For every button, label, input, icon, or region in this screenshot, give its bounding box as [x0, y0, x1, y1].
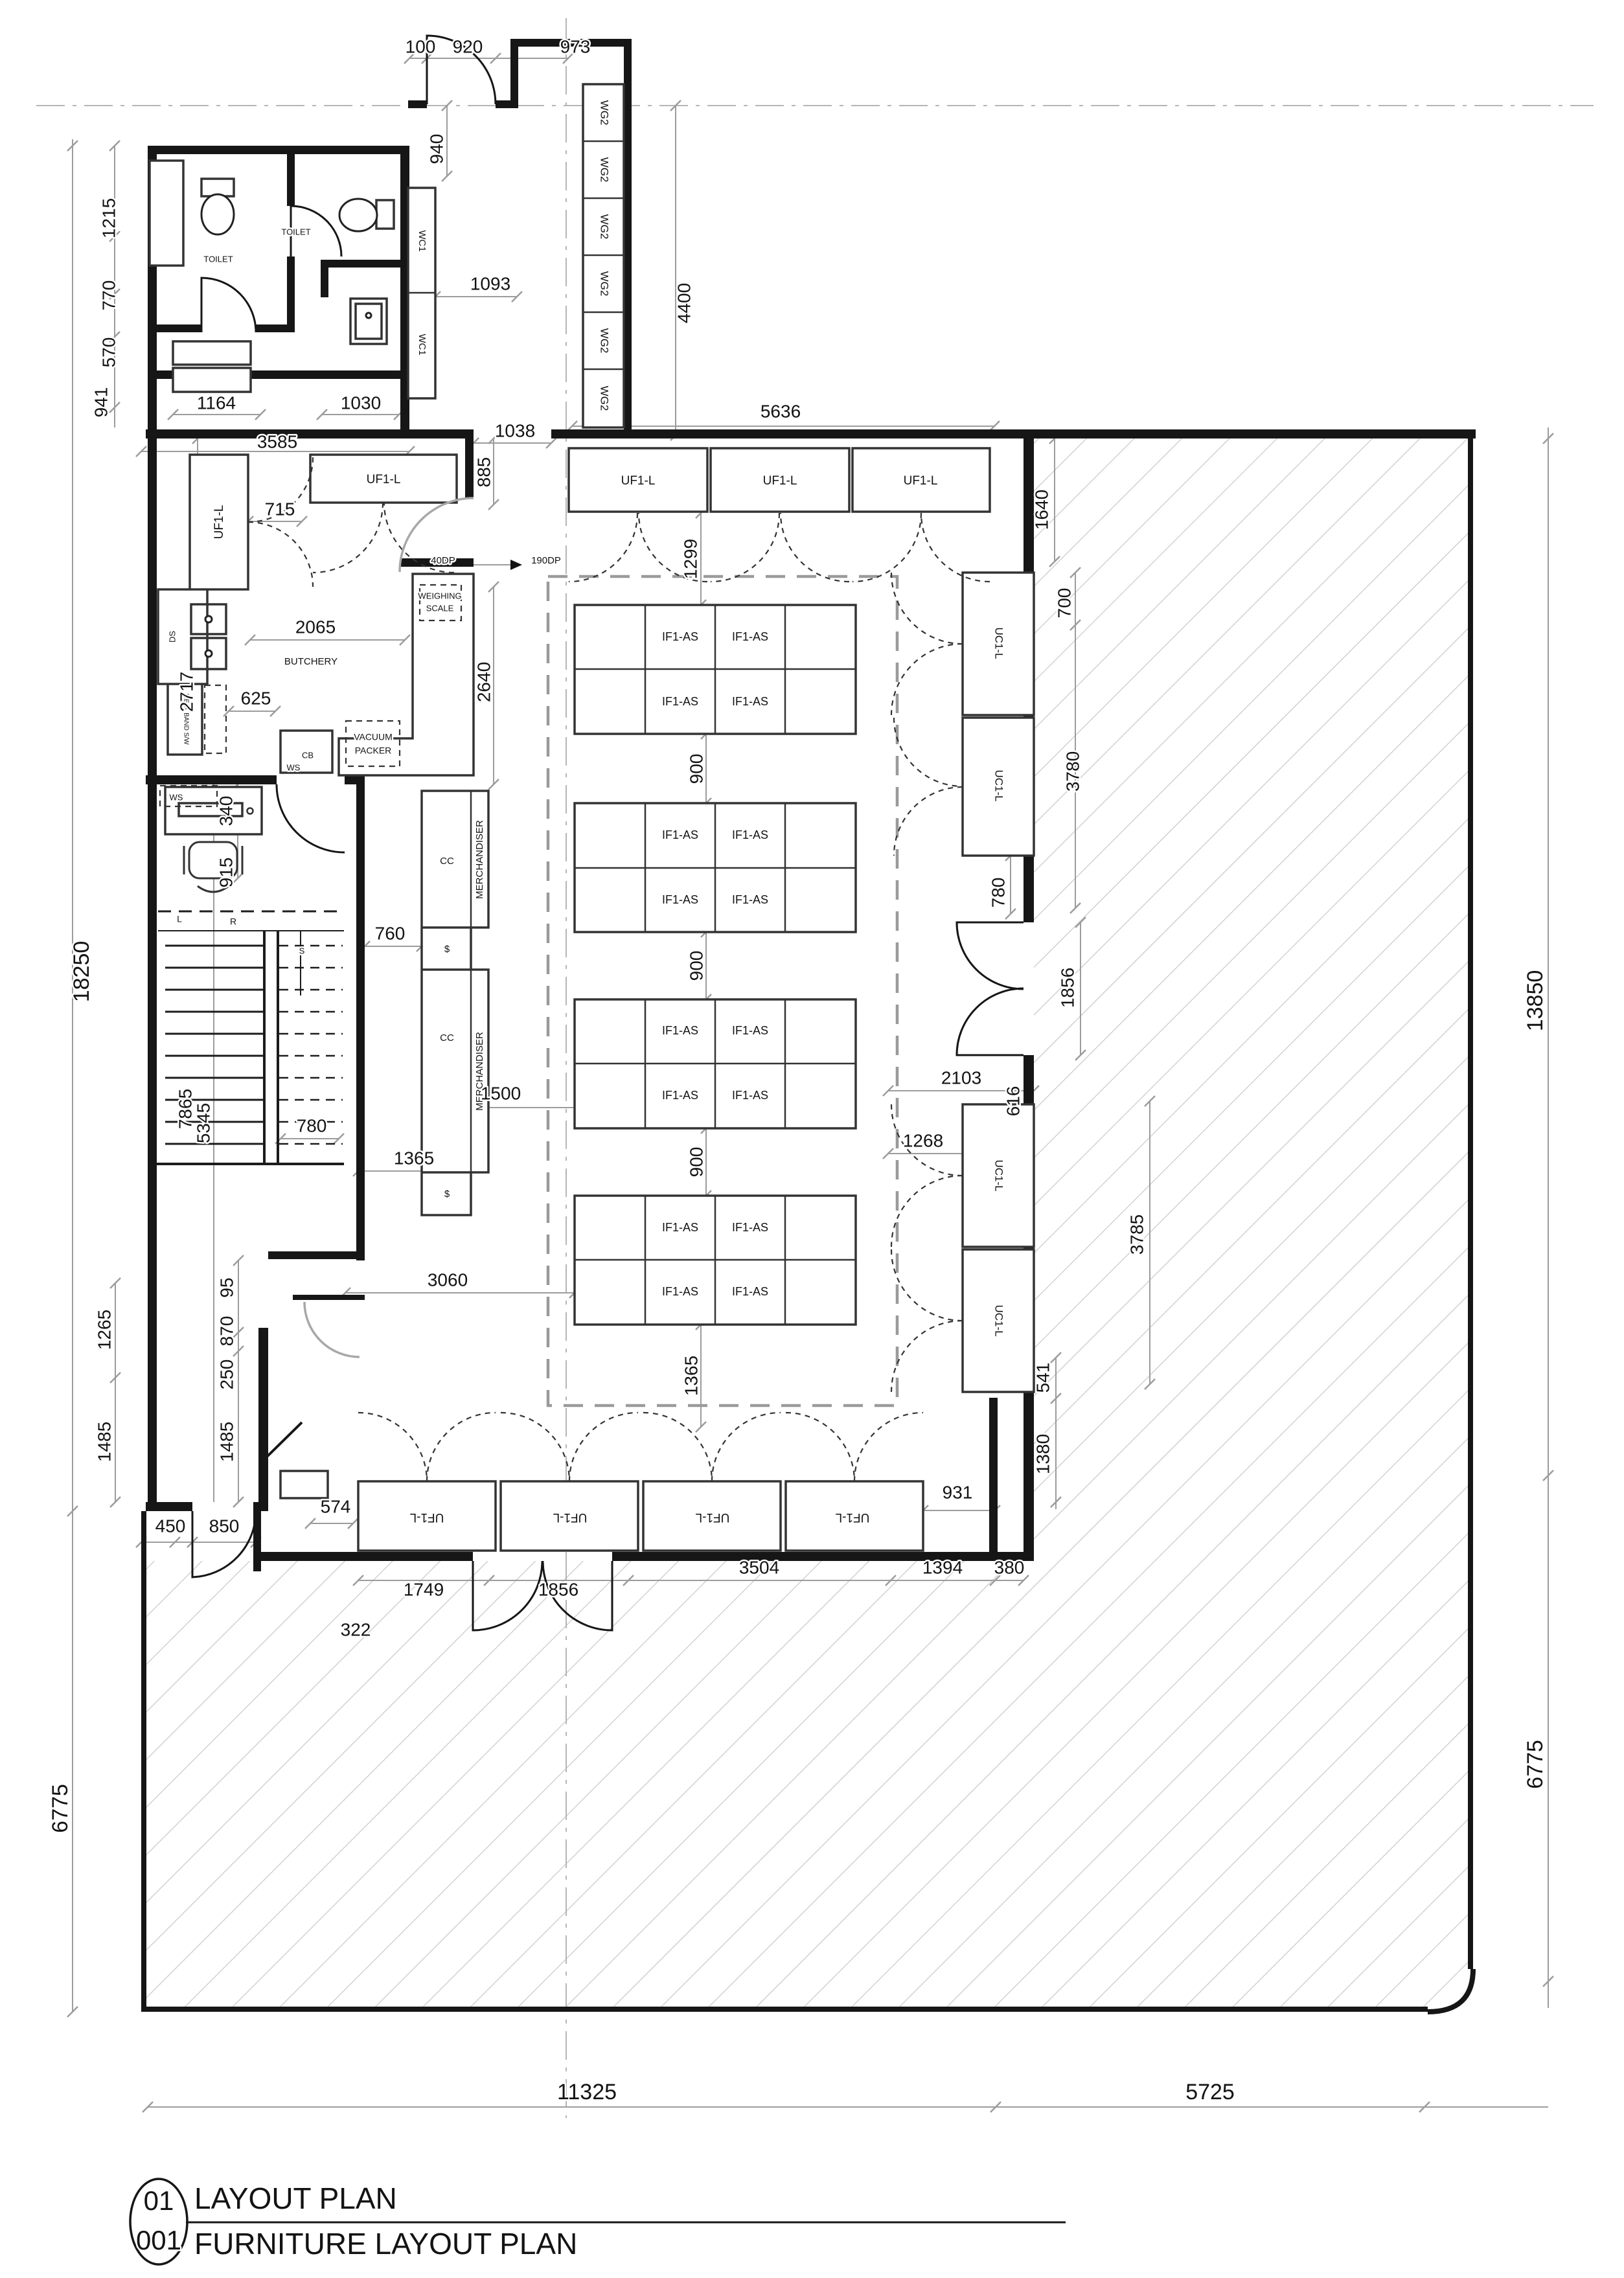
dims-label: 4400 [674, 283, 694, 323]
unit-uc1l: UC1-L [993, 627, 1005, 659]
door-tag-190dp: 190DP [531, 555, 561, 566]
dims-label: 900 [686, 1147, 706, 1178]
hatch-bottom [146, 1561, 1034, 2007]
dims-label: 1856 [538, 1579, 578, 1599]
dims-label: 5345 [193, 1103, 213, 1143]
dims-label: 1485 [94, 1422, 114, 1462]
drawing-sheet: 01 001 LAYOUT PLAN FURNITURE LAYOUT PLAN… [0, 0, 1624, 2278]
stair-label-l: L [177, 914, 182, 924]
merchandiser-cash-label: $ [444, 944, 450, 955]
dims-label: 1365 [394, 1148, 434, 1168]
dims-label: 7865 [175, 1089, 195, 1129]
dims-label: 900 [686, 951, 706, 981]
dims-label: 1215 [98, 198, 119, 238]
dims-label: 1640 [1031, 490, 1051, 530]
merchandiser-label: MERCHANDISER [474, 820, 485, 899]
unit-uf1l: UF1-L [696, 1510, 730, 1524]
unit-if1as: IF1-AS [662, 1089, 698, 1102]
unit-wg2: WG2 [599, 386, 611, 411]
workstation-label: WS [170, 792, 183, 802]
merchandiser-cash-label: $ [444, 1189, 450, 1200]
unit-uf1l: UF1-L [367, 473, 401, 486]
dims-label: 1380 [1033, 1434, 1053, 1474]
sheet-number: 001 [136, 2225, 181, 2255]
sink-drain-3 [366, 313, 371, 318]
unit-wg2: WG2 [599, 328, 611, 354]
dims-label: 770 [98, 280, 119, 311]
dims-label: 941 [91, 387, 111, 418]
dims-label: 920 [453, 36, 483, 56]
dims-label: 1365 [681, 1356, 701, 1396]
dims-label: 570 [98, 337, 119, 368]
dims-label: 13850 [1523, 970, 1548, 1032]
merchandiser-cc-label: CC [440, 1032, 454, 1043]
unit-wg2: WG2 [599, 157, 611, 183]
dims-label: 940 [426, 134, 446, 165]
dims-label: 715 [265, 499, 295, 519]
unit-if1as: IF1-AS [662, 828, 698, 841]
dims-label: 900 [686, 754, 706, 784]
hatch-right [1034, 439, 1468, 2007]
dims-label: 322 [341, 1619, 371, 1639]
room-label-toilet-1: TOILET [203, 254, 233, 264]
dims-label: 760 [375, 923, 406, 943]
dims-label: 5725 [1185, 2080, 1235, 2104]
dims-label: 1299 [680, 539, 700, 579]
dims-label: 1394 [922, 1557, 963, 1577]
dims-label: 2717 [176, 672, 196, 712]
unit-if1as: IF1-AS [662, 695, 698, 708]
toilet-bowl-1 [201, 194, 234, 234]
unit-wc1: WC1 [417, 230, 428, 251]
unit-wg2: WG2 [599, 271, 611, 297]
room-label-toilet-2: TOILET [281, 227, 310, 236]
weighing-scale-label: WEIGHING [418, 591, 461, 600]
dims-label: 3585 [257, 431, 297, 451]
dims-label: 3504 [739, 1557, 779, 1577]
dims-label: 1485 [216, 1422, 236, 1462]
dims-label: 850 [209, 1516, 240, 1536]
double-sink-label: DS [167, 631, 177, 643]
unit-uf1l: UF1-L [212, 505, 226, 540]
unit-if1as: IF1-AS [732, 1024, 768, 1037]
vacuum-packer-label: VACUUM [354, 732, 393, 742]
dims-label: 1265 [94, 1310, 114, 1350]
dims-label: 1038 [495, 420, 535, 440]
cutting-board-label: CB [302, 750, 314, 760]
dims-label: 450 [155, 1516, 186, 1536]
dims-label: 250 [216, 1360, 236, 1390]
unit-if1as: IF1-AS [732, 893, 768, 906]
dims-label: 625 [241, 688, 271, 708]
dims-label: 95 [216, 1277, 236, 1297]
sink-drain-1 [205, 616, 212, 622]
dims-label: 1856 [1057, 968, 1077, 1008]
dims-label: 3060 [428, 1270, 468, 1290]
dims-label: 1093 [470, 273, 510, 293]
unit-if1as: IF1-AS [662, 1221, 698, 1234]
unit-if1as: IF1-AS [732, 828, 768, 841]
unit-if1as: IF1-AS [662, 1285, 698, 1298]
room-label-butchery: BUTCHERY [284, 656, 337, 667]
dims-label: 574 [321, 1496, 351, 1516]
drawing-title: LAYOUT PLAN [194, 2181, 397, 2215]
unit-uf1l: UF1-L [904, 474, 938, 488]
dims-label: 780 [988, 878, 1008, 908]
unit-if1as: IF1-AS [662, 893, 698, 906]
dims-label: 3785 [1127, 1214, 1147, 1255]
unit-wg2: WG2 [599, 100, 611, 126]
unit-if1as: IF1-AS [732, 695, 768, 708]
vacuum-packer-label: PACKER [355, 746, 392, 756]
unit-uc1l: UC1-L [993, 1304, 1005, 1336]
unit-wg2: WG2 [599, 214, 611, 240]
dims-label: 700 [1054, 588, 1074, 619]
dims-label: 870 [216, 1316, 236, 1347]
dims-label: 616 [1003, 1086, 1023, 1117]
dims-label: 885 [474, 457, 494, 488]
dims-label: 5636 [761, 401, 801, 421]
unit-if1as: IF1-AS [732, 1285, 768, 1298]
unit-wc1: WC1 [417, 334, 428, 355]
detail-number: 01 [144, 2185, 174, 2216]
door-tag-40dp: 40DP [431, 555, 455, 566]
stair-label-s: S [299, 946, 305, 955]
dims-label: 1164 [197, 393, 236, 413]
drawing-subtitle: FURNITURE LAYOUT PLAN [194, 2227, 577, 2261]
dims-label: 6775 [1523, 1740, 1548, 1789]
dims-label: 973 [560, 36, 591, 56]
dims-label: 780 [297, 1115, 327, 1135]
dims-label: 541 [1033, 1363, 1053, 1393]
unit-uf1l: UF1-L [410, 1510, 444, 1524]
dims-label: 1030 [341, 393, 381, 413]
unit-if1as: IF1-AS [662, 630, 698, 643]
dims-label: 11325 [557, 2080, 617, 2104]
merchandiser-cc-label: CC [440, 856, 454, 867]
dims-label: 3780 [1062, 751, 1082, 792]
toilet-bowl-2 [339, 199, 377, 231]
unit-if1as: IF1-AS [732, 1221, 768, 1234]
dims-label: 2103 [941, 1067, 981, 1088]
unit-uf1l: UF1-L [621, 474, 656, 488]
dims-label: 931 [943, 1482, 973, 1502]
furniture-layout-plan: 01 001 LAYOUT PLAN FURNITURE LAYOUT PLAN… [0, 0, 1624, 2278]
dims-label: 2640 [474, 662, 494, 702]
unit-uc1l: UC1-L [993, 1159, 1005, 1191]
dims-label: 380 [994, 1557, 1025, 1577]
dims-label: 18250 [69, 941, 94, 1003]
unit-uc1l: UC1-L [993, 769, 1005, 801]
unit-if1as: IF1-AS [732, 1089, 768, 1102]
worksurface-label: WS [287, 762, 301, 772]
unit-uf1l: UF1-L [836, 1510, 870, 1524]
unit-if1as: IF1-AS [662, 1024, 698, 1037]
dims-label: 2065 [295, 617, 336, 637]
dims-label: 340 [216, 796, 236, 826]
unit-uf1l: UF1-L [553, 1510, 588, 1524]
dims-label: 1500 [481, 1083, 521, 1103]
dims-label: 1749 [404, 1579, 444, 1599]
stair-label-r: R [230, 917, 236, 927]
weighing-scale-label: SCALE [426, 603, 454, 613]
dims-label: 100 [406, 36, 436, 56]
unit-uf1l: UF1-L [763, 474, 797, 488]
dims-label: 915 [216, 858, 236, 888]
dims-label: 6775 [48, 1784, 73, 1833]
sink-drain-2 [205, 650, 212, 657]
unit-if1as: IF1-AS [732, 630, 768, 643]
dims-label: 1268 [903, 1130, 943, 1150]
